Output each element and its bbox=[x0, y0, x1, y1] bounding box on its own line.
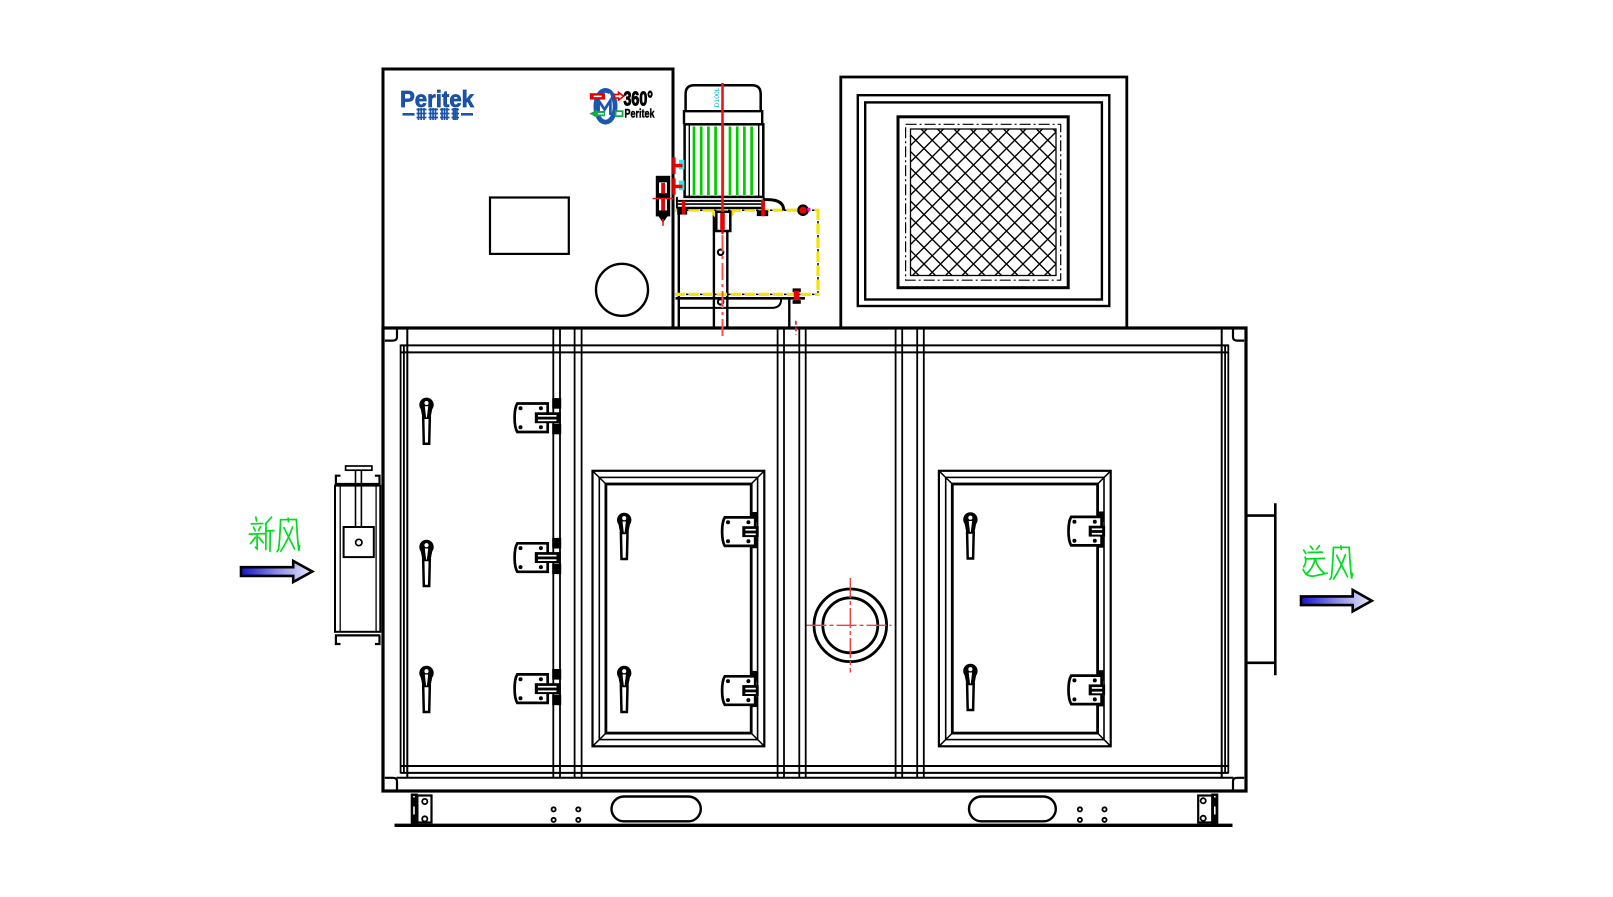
svg-text:Peritek: Peritek bbox=[625, 107, 655, 121]
svg-text:D100L: D100L bbox=[714, 87, 721, 107]
svg-text:Peritek: Peritek bbox=[400, 86, 475, 112]
